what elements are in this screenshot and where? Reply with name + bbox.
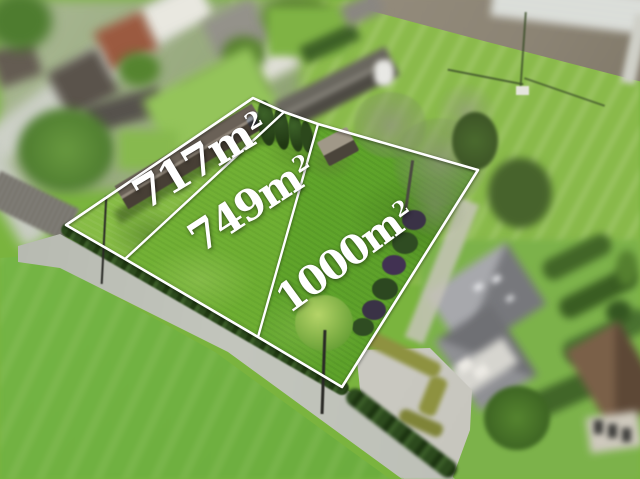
aerial-photo: 717m2 749m2 1000m2 [0,0,640,479]
parcel-boundary-overlay [0,0,640,479]
